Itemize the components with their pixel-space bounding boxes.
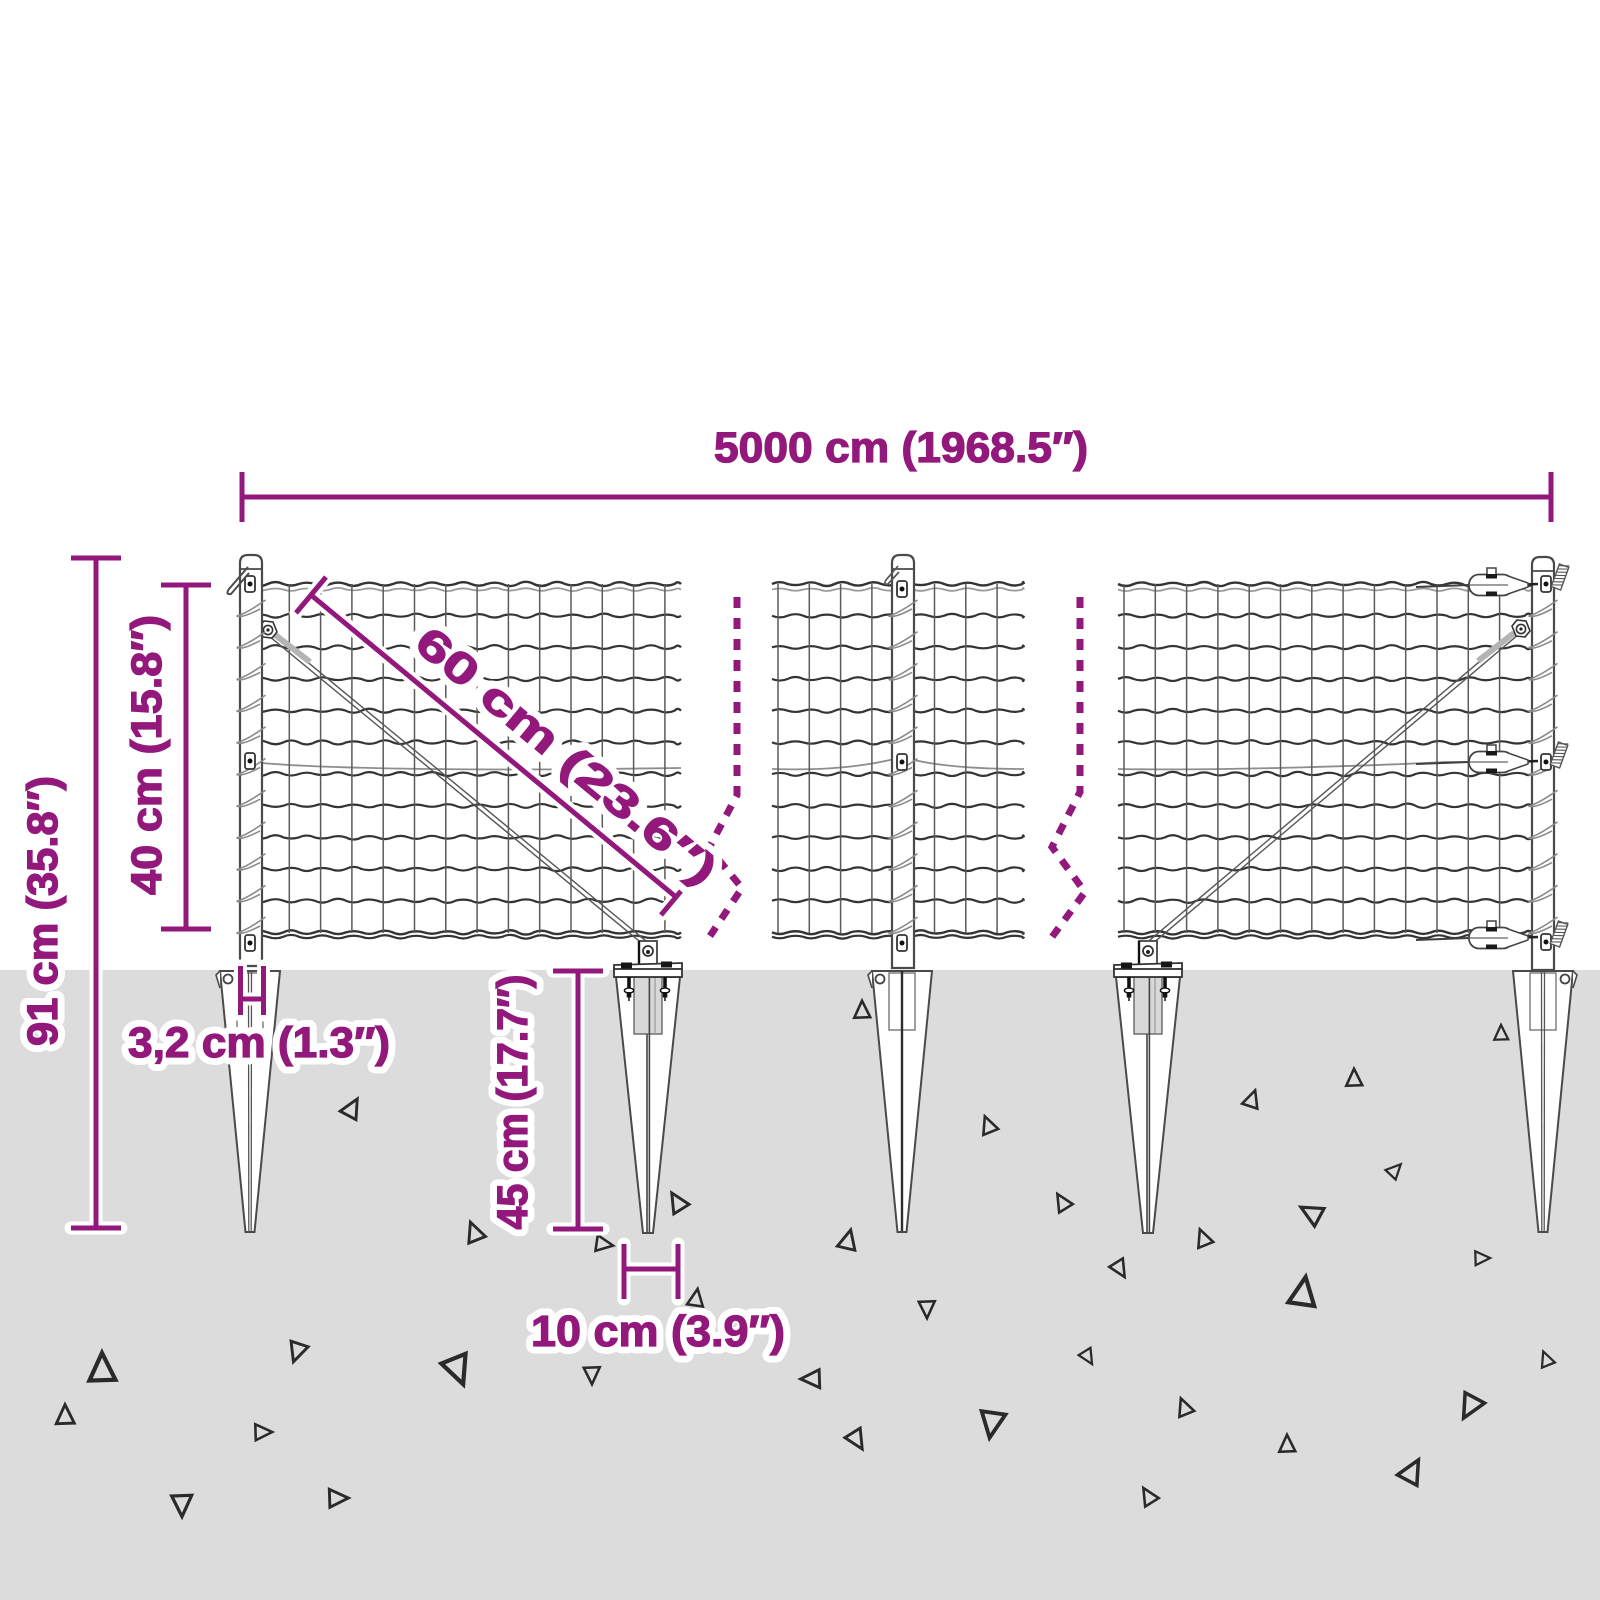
svg-text:40 cm (15.8″): 40 cm (15.8″) bbox=[123, 615, 171, 895]
svg-text:91 cm (35.8″): 91 cm (35.8″) bbox=[19, 776, 67, 1046]
svg-text:5000 cm (1968.5″): 5000 cm (1968.5″) bbox=[714, 424, 1088, 472]
svg-text:10 cm (3.9″): 10 cm (3.9″) bbox=[531, 1307, 785, 1356]
svg-text:45 cm (17.7″): 45 cm (17.7″) bbox=[489, 975, 537, 1230]
svg-text:3,2 cm (1.3″): 3,2 cm (1.3″) bbox=[128, 1019, 390, 1067]
